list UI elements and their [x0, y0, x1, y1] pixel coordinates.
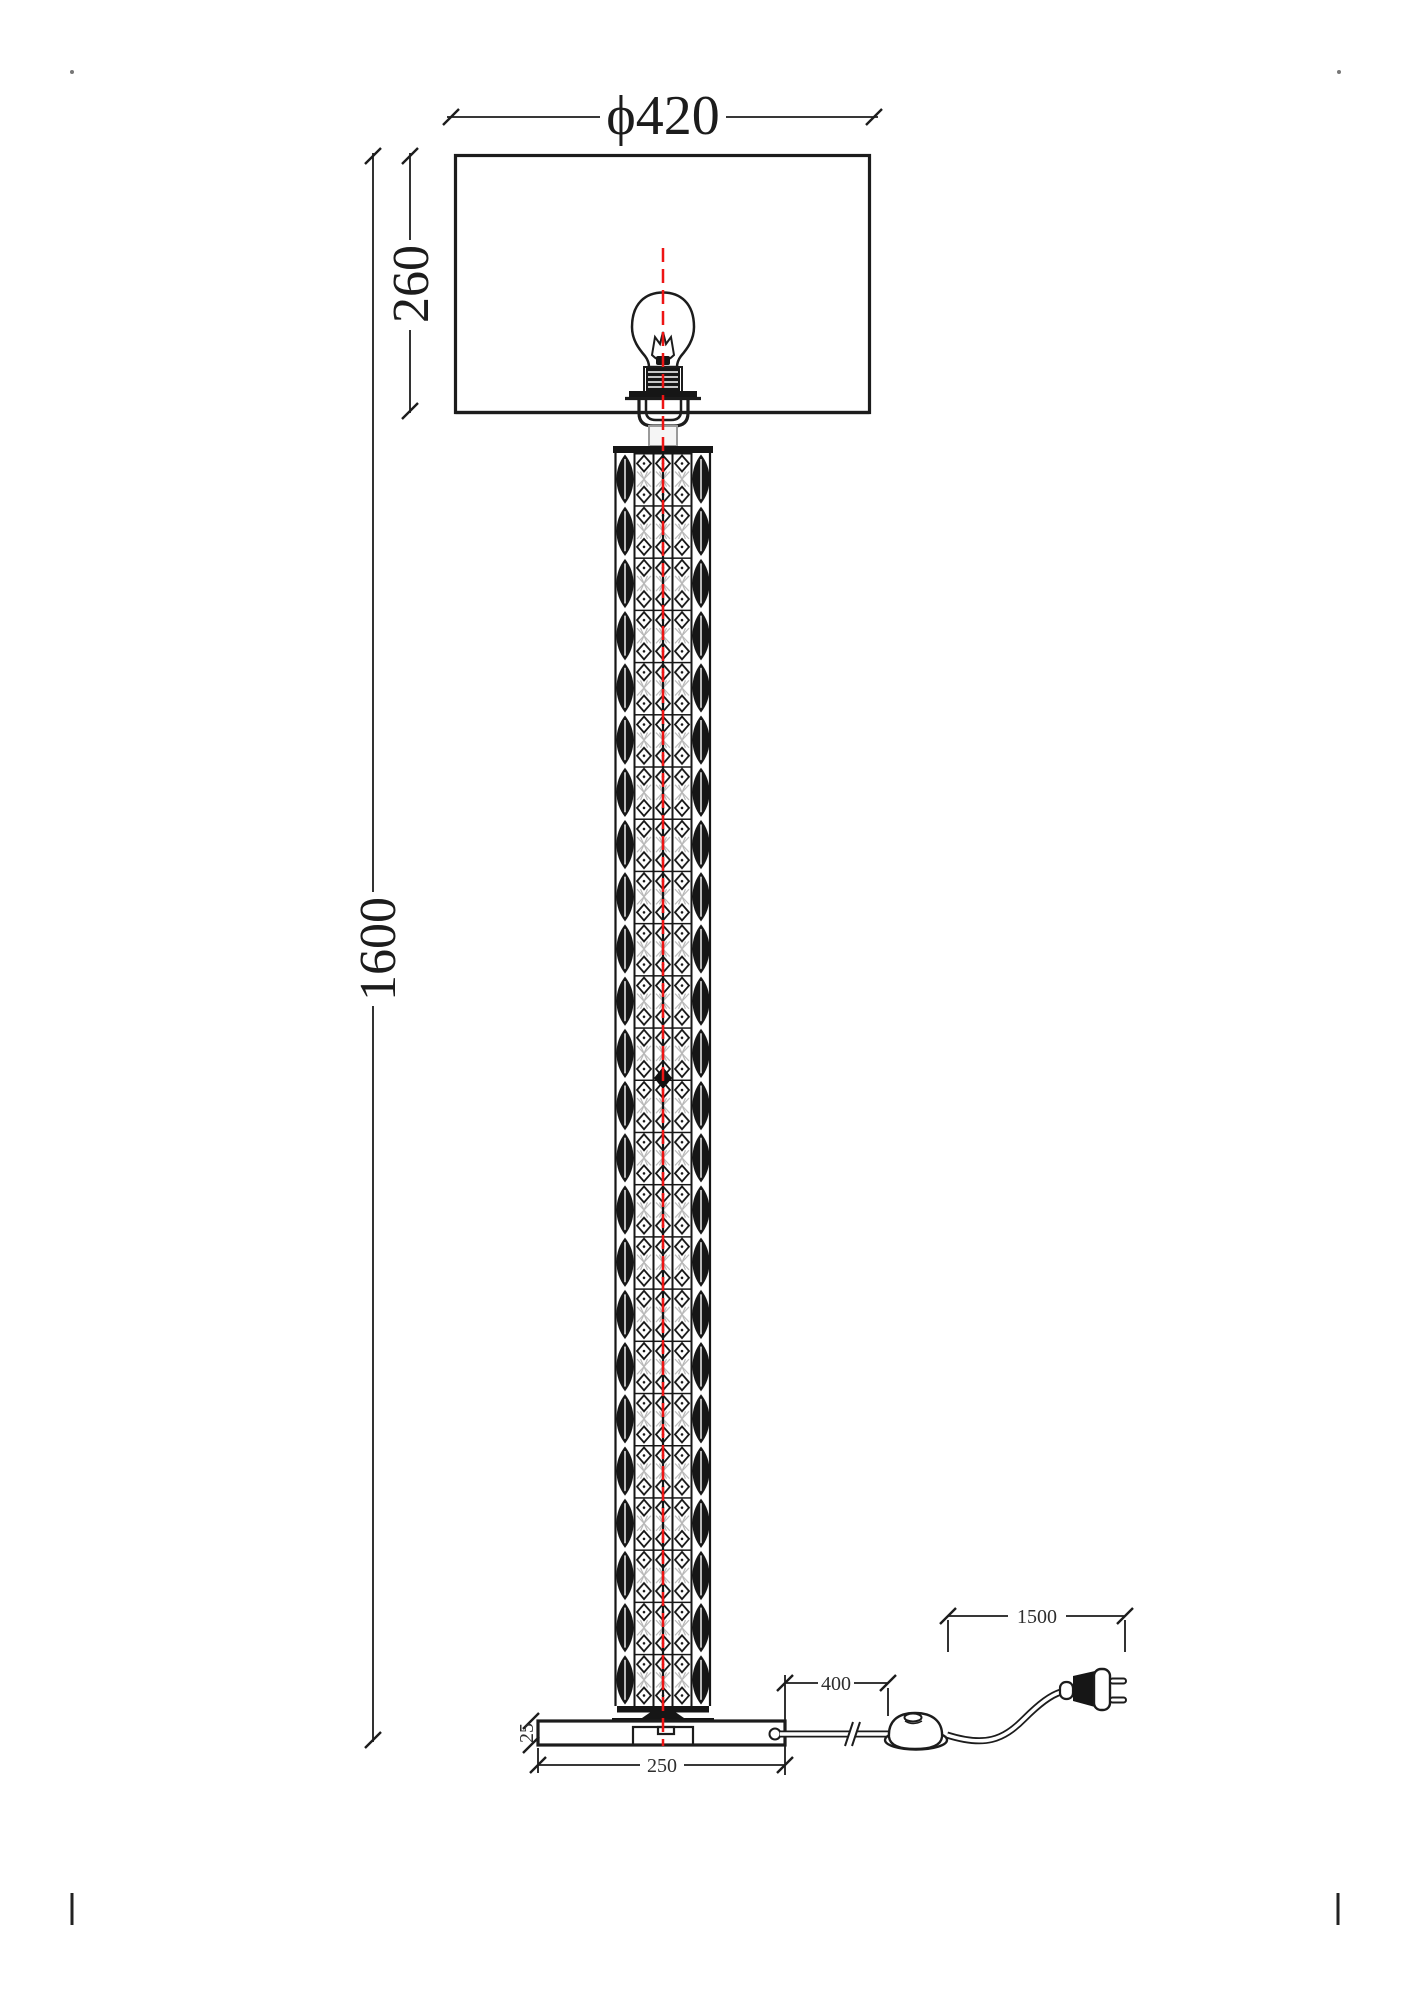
corner-bar-bottom-right	[1337, 1893, 1340, 1925]
base-width-label: 250	[647, 1755, 677, 1777]
dim-base-thickness: 25	[516, 1713, 539, 1753]
switch-distance-label: 400	[821, 1673, 851, 1695]
dim-total-height: 1600	[350, 148, 407, 1748]
corner-dot-top-right	[1337, 70, 1341, 74]
dim-shade-diameter: ϕ420	[443, 85, 882, 147]
dim-switch-distance: 400	[777, 1673, 896, 1716]
base-notch	[658, 1727, 674, 1734]
total-height-label: 1600	[350, 897, 407, 1001]
base-thickness-label: 25	[516, 1723, 538, 1743]
foot-switch	[885, 1713, 947, 1750]
plug-prong	[1110, 1679, 1126, 1684]
lamp-base	[538, 1721, 785, 1745]
drawing-canvas: ϕ420 260 1600	[0, 0, 1413, 2000]
corner-bar-bottom-left	[71, 1893, 74, 1925]
power-plug	[1060, 1669, 1126, 1710]
corner-dot-top-left	[70, 70, 74, 74]
plug-prong	[1110, 1698, 1126, 1703]
cord-grommet	[770, 1729, 781, 1740]
dim-shade-height: 260	[383, 148, 440, 419]
dim-cord-length: 1500	[940, 1606, 1133, 1652]
column-foot	[642, 1713, 684, 1719]
switch-button	[905, 1714, 922, 1722]
shade-diameter-label: ϕ420	[606, 85, 719, 147]
shade-height-label: 260	[383, 245, 440, 323]
cord-length-label: 1500	[1017, 1606, 1057, 1628]
